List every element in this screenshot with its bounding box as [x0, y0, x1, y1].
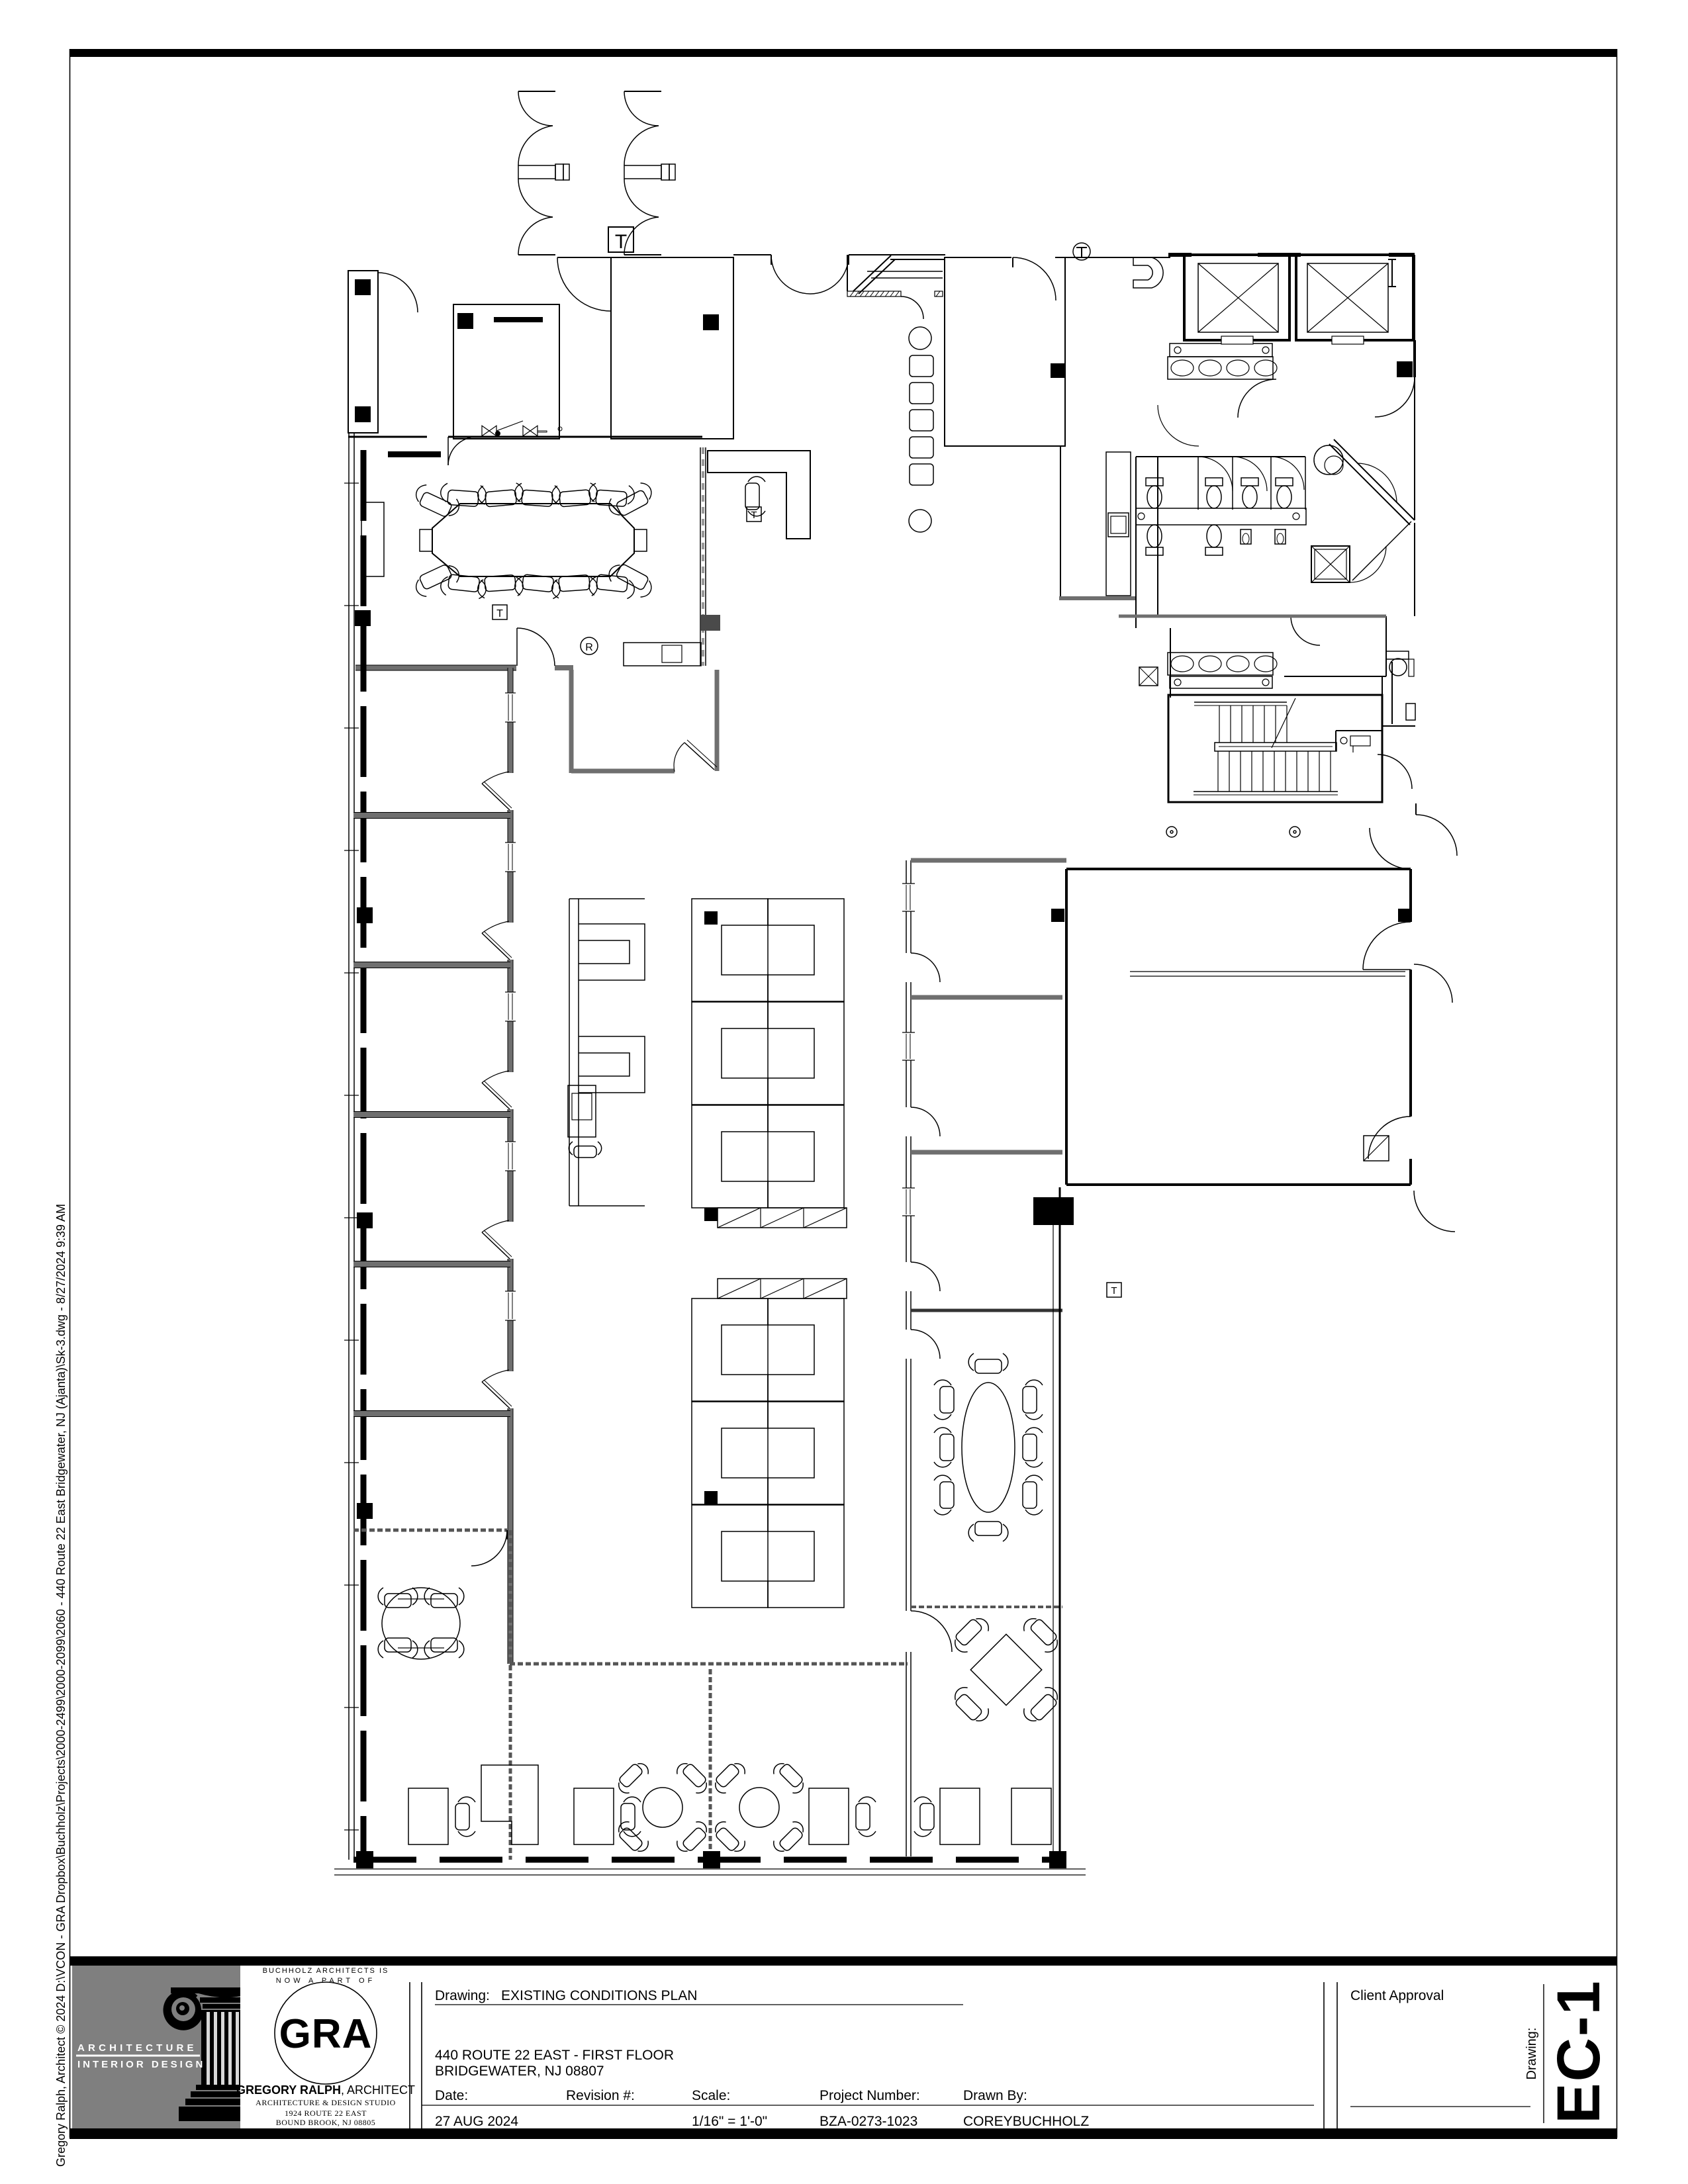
svg-text:EC-1: EC-1 [1545, 1979, 1613, 2124]
svg-text:Date:: Date: [435, 2088, 468, 2103]
svg-text:Project Number:: Project Number: [820, 2088, 920, 2103]
svg-text:Drawing:: Drawing: [1524, 2028, 1539, 2080]
svg-text:INTERIOR DESIGN: INTERIOR DESIGN [77, 2059, 205, 2070]
svg-text:BRIDGEWATER, NJ 08807: BRIDGEWATER, NJ 08807 [435, 2064, 604, 2079]
svg-text:ARCHITECTURE: ARCHITECTURE [77, 2042, 197, 2054]
svg-text:T: T [751, 510, 757, 521]
svg-text:T: T [615, 231, 627, 253]
svg-text:Gregory Ralph, Architect © 20: Gregory Ralph, Architect © 2024 D:\VCON … [54, 1204, 68, 2167]
svg-text:BZA-0273-1023: BZA-0273-1023 [820, 2114, 917, 2129]
svg-text:Revision #:: Revision #: [566, 2088, 635, 2103]
svg-text:440 ROUTE 22 EAST - FIRST FLOO: 440 ROUTE 22 EAST - FIRST FLOOR [435, 2048, 674, 2063]
svg-text:GREGORY RALPH, ARCHITECT: GREGORY RALPH, ARCHITECT [236, 2083, 415, 2097]
svg-text:ARCHITECTURE & DESIGN STUDIO: ARCHITECTURE & DESIGN STUDIO [256, 2098, 396, 2107]
svg-text:BOUND BROOK, NJ 08805: BOUND BROOK, NJ 08805 [276, 2118, 376, 2127]
svg-text:R: R [585, 642, 593, 653]
svg-text:Scale:: Scale: [692, 2088, 730, 2103]
svg-text:T: T [1111, 1285, 1117, 1297]
svg-text:BUCHHOLZ ARCHITECTS IS: BUCHHOLZ ARCHITECTS IS [263, 1967, 389, 1975]
svg-text:GRA: GRA [279, 2011, 373, 2057]
svg-text:Client Approval: Client Approval [1350, 1988, 1444, 2003]
svg-text:27 AUG 2024: 27 AUG 2024 [435, 2114, 518, 2129]
svg-text:EXISTING CONDITIONS PLAN: EXISTING CONDITIONS PLAN [501, 1988, 697, 2003]
svg-text:1/16" = 1'-0": 1/16" = 1'-0" [692, 2114, 767, 2129]
svg-text:Drawing:: Drawing: [435, 1988, 490, 2003]
svg-text:Drawn By:: Drawn By: [963, 2088, 1027, 2103]
svg-text:T: T [496, 608, 503, 619]
svg-text:COREYBUCHHOLZ: COREYBUCHHOLZ [963, 2114, 1089, 2129]
svg-text:1924 ROUTE 22 EAST: 1924 ROUTE 22 EAST [285, 2109, 367, 2118]
svg-text:NOW A PART OF: NOW A PART OF [276, 1977, 376, 1985]
